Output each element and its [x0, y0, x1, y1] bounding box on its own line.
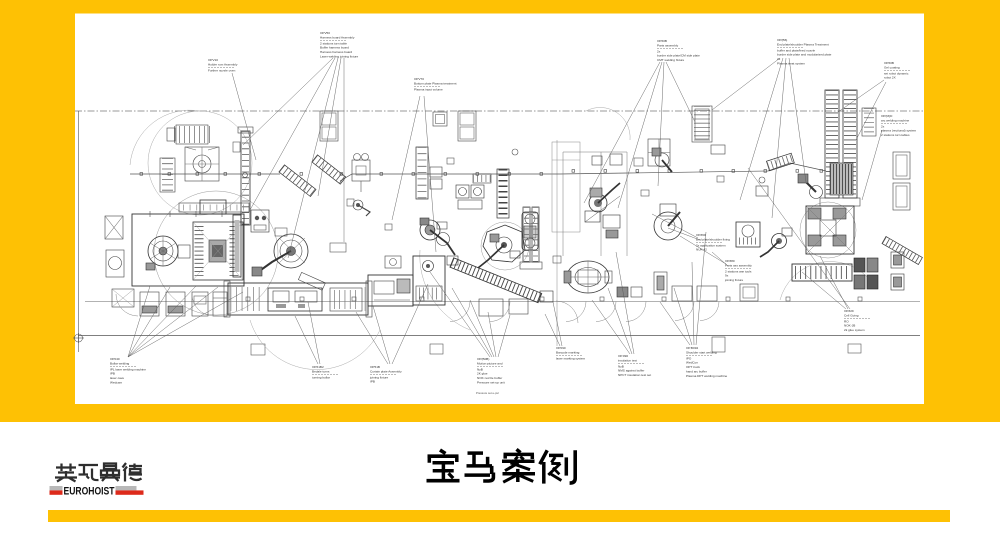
svg-text:CMT welding fixture: CMT welding fixture [657, 58, 685, 62]
svg-text:9x: 9x [725, 274, 729, 278]
svg-text:Pressure set-up unit: Pressure set-up unit [477, 381, 505, 385]
svg-text:OP.B094: OP.B094 [686, 346, 698, 350]
svg-text:plasma (rectional) system: plasma (rectional) system [881, 129, 917, 133]
svg-text:2x: 2x [777, 57, 781, 61]
svg-text:buffer and plate/feed nozzle: buffer and plate/feed nozzle [777, 48, 815, 52]
svg-text:laser marking system: laser marking system [556, 356, 586, 360]
svg-text:OP(M)D: OP(M)D [881, 114, 893, 118]
svg-text:End plate/shoulder Plasma Trea: End plate/shoulder Plasma Treatment [777, 42, 829, 46]
svg-text:OP#60: OP#60 [696, 233, 706, 237]
svg-text:Further nozzle oven: Further nozzle oven [208, 68, 236, 72]
svg-text:2x: 2x [881, 124, 885, 128]
svg-text:Pressure set-u-pul: Pressure set-u-pul [476, 391, 499, 395]
svg-text:OP#29: OP#29 [844, 309, 854, 313]
svg-text:WedCon: WedCon [686, 361, 698, 365]
svg-text:IPO: IPO [686, 356, 692, 360]
svg-text:Curtain plate Assembly: Curtain plate Assembly [370, 369, 402, 373]
svg-text:Parts ass assembly: Parts ass assembly [725, 263, 752, 267]
svg-text:border side plate/CM side plat: border side plate/CM side plate [657, 54, 700, 58]
svg-text:NPCT insulation test set: NPCT insulation test set [618, 373, 651, 377]
svg-text:NMS against buffer: NMS against buffer [618, 369, 644, 373]
svg-text:2x application system: 2x application system [696, 243, 726, 247]
svg-text:Holder rum Assembly: Holder rum Assembly [208, 62, 238, 66]
svg-text:border side plate and modulari: border side plate and modularized plate [777, 53, 832, 57]
svg-text:joining fixture: joining fixture [724, 278, 744, 282]
svg-text:NyB: NyB [477, 367, 483, 371]
svg-text:NyB: NyB [618, 364, 624, 368]
svg-text:2 stations war tools: 2 stations war tools [725, 269, 752, 273]
svg-text:Bullar welding: Bullar welding [110, 361, 130, 365]
svg-text:IPL laser welding machine: IPL laser welding machine [110, 367, 146, 371]
svg-text:NOK-JB: NOK-JB [844, 324, 855, 328]
svg-text:joining fixture: joining fixture [369, 375, 389, 379]
svg-text:2k glue system: 2k glue system [844, 328, 865, 332]
svg-text:Harness harness board: Harness harness board [320, 50, 352, 54]
svg-text:set robot dynamic: set robot dynamic [884, 71, 909, 75]
svg-text:2 stations turn table: 2 stations turn table [320, 41, 347, 45]
svg-text:OP61B2: OP61B2 [312, 365, 324, 369]
svg-text:OP090: OP090 [556, 346, 566, 350]
svg-text:OP51B: OP51B [370, 365, 380, 369]
svg-text:Laser welding joining fixture: Laser welding joining fixture [320, 55, 358, 59]
svg-text:Bedale turns: Bedale turns [312, 369, 330, 373]
svg-text:IPB: IPB [370, 380, 375, 384]
svg-text:OP#80: OP#80 [725, 259, 735, 263]
svg-text:IPB: IPB [110, 372, 115, 376]
svg-text:OPT truck: OPT truck [686, 365, 700, 369]
svg-text:insulation test: insulation test [618, 358, 637, 362]
svg-text:OP60B: OP60B [884, 61, 894, 65]
svg-text:turning bullar: turning bullar [312, 375, 330, 379]
svg-text:Motion picture and: Motion picture and [477, 361, 503, 365]
svg-text:Gel coating: Gel coating [884, 65, 900, 69]
svg-text:Barcode marking: Barcode marking [556, 350, 580, 354]
svg-text:2x: 2x [657, 49, 661, 53]
svg-text:hand arc buffer: hand arc buffer [686, 370, 707, 374]
svg-text:Plasma input volume: Plasma input volume [414, 87, 443, 91]
svg-text:OP.090: OP.090 [618, 354, 628, 358]
svg-text:NUK 42: NUK 42 [696, 248, 707, 252]
svg-text:End plate/shoulder fixing: End plate/shoulder fixing [696, 237, 730, 241]
svg-text:Buffer harness board: Buffer harness board [320, 46, 349, 50]
svg-text:Plasma treat system: Plasma treat system [777, 62, 805, 66]
svg-text:arc welding machine: arc welding machine [881, 118, 909, 122]
svg-text:OP040: OP040 [110, 357, 120, 361]
svg-text:Wedcam: Wedcam [110, 381, 123, 385]
svg-text:Cell Going: Cell Going [844, 313, 859, 317]
svg-text:Harness board Assembly: Harness board Assembly [320, 35, 355, 39]
svg-text:laser cave: laser cave [110, 376, 124, 380]
svg-text:OPV70: OPV70 [414, 77, 424, 81]
svg-text:OPV10: OPV10 [208, 58, 218, 62]
svg-text:EUROHOIST: EUROHOIST [64, 486, 115, 498]
svg-text:OP(B0B): OP(B0B) [477, 357, 489, 361]
svg-text:2K glue: 2K glue [477, 372, 488, 376]
svg-text:Shoulder start welding: Shoulder start welding [686, 350, 717, 354]
svg-text:2 stations turn tables: 2 stations turn tables [881, 133, 910, 137]
svg-text:RO: RO [844, 319, 849, 323]
svg-text:NOK nozzle buffer: NOK nozzle buffer [477, 376, 502, 380]
svg-text:OPV50: OPV50 [320, 31, 330, 35]
svg-text:Plasma DPT welding machine: Plasma DPT welding machine [686, 374, 727, 378]
svg-text:OP(B6): OP(B6) [777, 38, 787, 42]
svg-text:Bottom plate Plasma treatment: Bottom plate Plasma treatment [414, 81, 457, 85]
svg-text:robot 2X: robot 2X [884, 76, 896, 80]
svg-text:Parts assembly: Parts assembly [657, 43, 679, 47]
svg-text:OP60B: OP60B [657, 39, 667, 43]
